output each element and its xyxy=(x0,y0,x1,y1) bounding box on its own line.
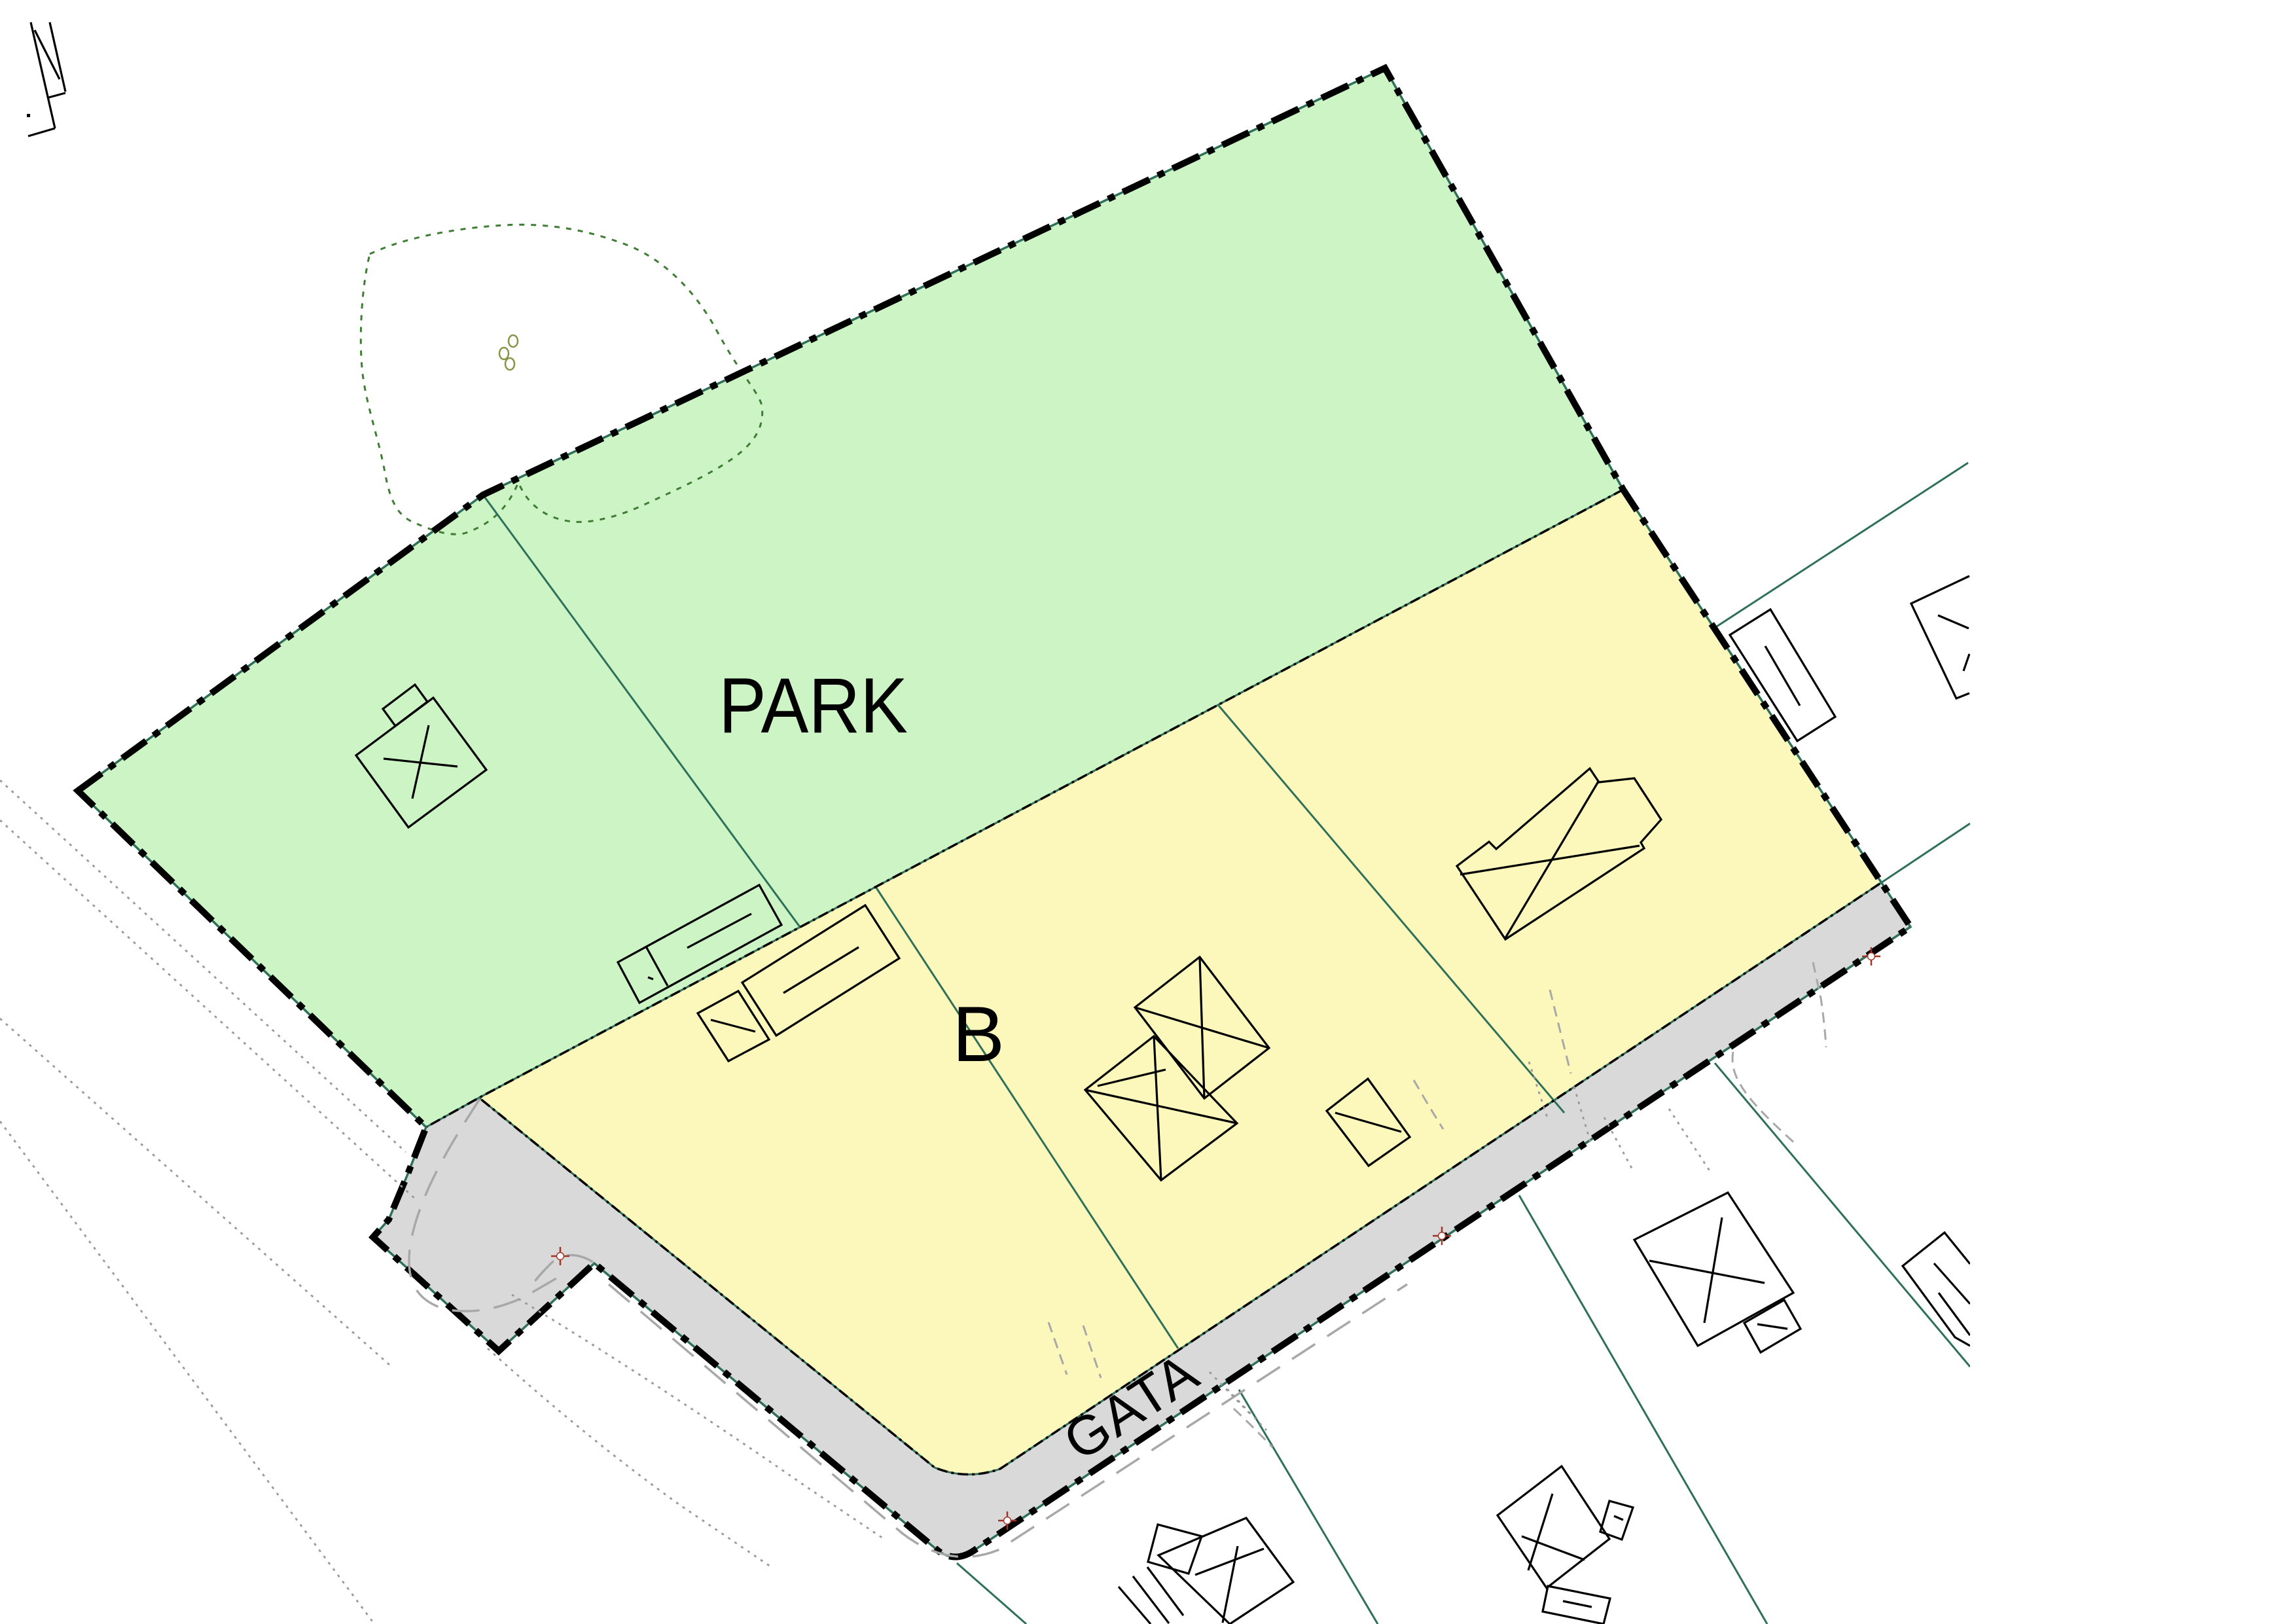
svg-text:PARK: PARK xyxy=(719,662,908,749)
svg-text:B: B xyxy=(952,990,1005,1078)
